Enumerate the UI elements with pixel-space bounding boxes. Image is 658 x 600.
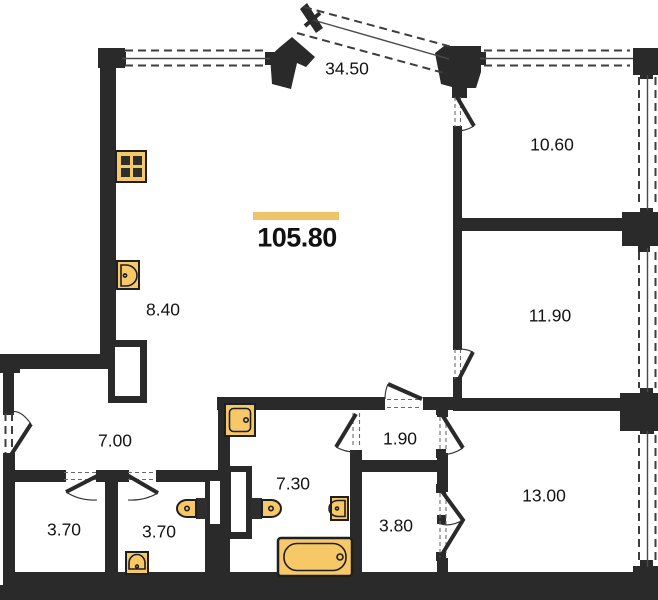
door-swing-wc-left [66, 475, 99, 500]
kitchen-sink-icon [117, 261, 139, 289]
floorplan-canvas [0, 0, 658, 600]
area-label-wc-left: 3.70 [47, 520, 81, 541]
stove-icon [116, 151, 146, 182]
area-label-bedroom-middle: 11.90 [529, 306, 572, 327]
bathtub-icon [278, 538, 352, 576]
door-swing-wc-right [127, 475, 158, 500]
door-swing-wardrobe [385, 384, 422, 399]
door-swing-bedroom-top [457, 97, 474, 131]
floor-plan: 34.50 10.60 8.40 11.90 7.00 1.90 7.30 3.… [0, 0, 658, 600]
door-swing-bathroom [336, 414, 356, 452]
door-swing-bedroom-middle [457, 349, 473, 383]
area-label-wc-right: 3.70 [142, 522, 176, 543]
area-label-wardrobe: 1.90 [383, 429, 417, 450]
washbasin-icon [329, 497, 348, 520]
bathroom-square-sink-icon [225, 404, 255, 436]
toilet-icon [177, 498, 207, 519]
area-label-hallway: 7.00 [98, 431, 132, 452]
washbasin-icon-2 [126, 552, 148, 574]
area-label-bathroom: 7.30 [276, 474, 310, 495]
door-swing-bedroom-bottom [441, 413, 463, 455]
area-label-kitchen-zone: 8.40 [146, 300, 180, 321]
total-area-underline [253, 212, 339, 220]
toilet-icon-2 [251, 498, 281, 519]
total-area-label: 105.80 [257, 223, 337, 254]
area-label-storage: 3.80 [379, 516, 413, 537]
area-label-bedroom-top: 10.60 [530, 135, 574, 156]
area-label-bedroom-bottom: 13.00 [522, 486, 566, 507]
area-label-terrace: 34.50 [325, 59, 369, 80]
